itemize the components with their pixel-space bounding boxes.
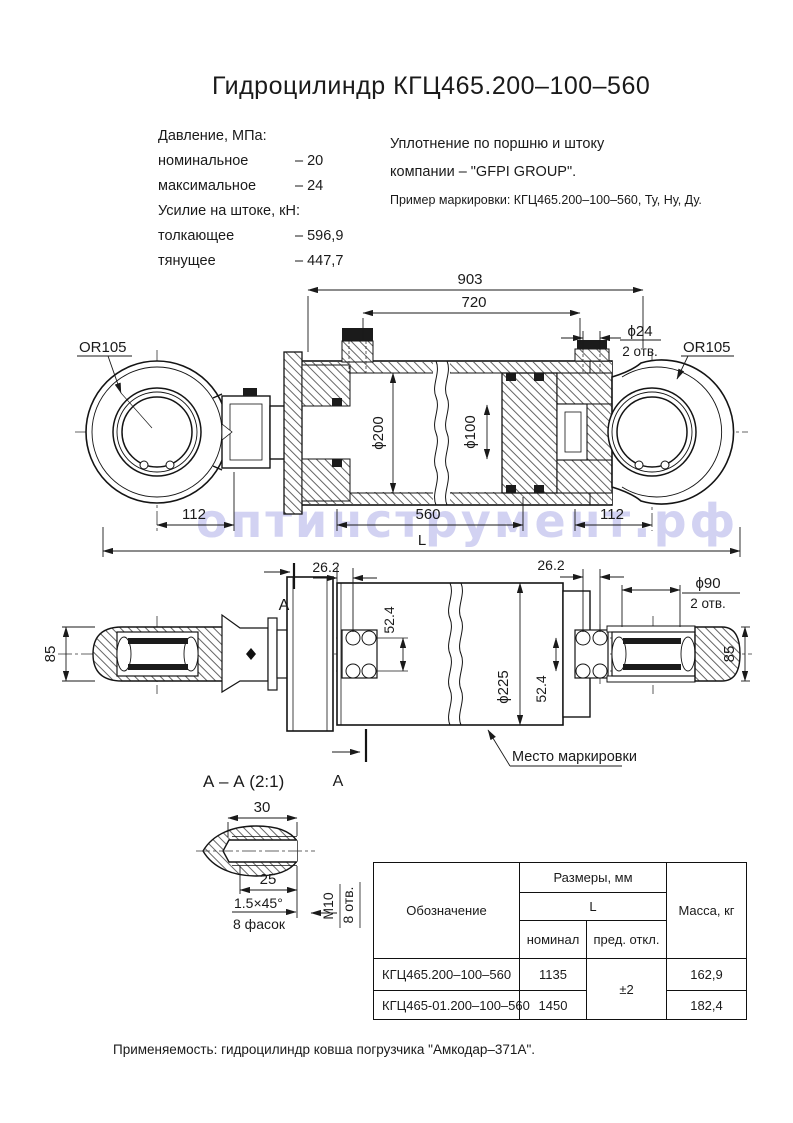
table-row-mass: 182,4	[667, 991, 746, 1019]
table-row-mass: 162,9	[667, 959, 746, 991]
section-title: А – А (2:1)	[203, 772, 284, 791]
dim-eye-hole-qty: 2 отв.	[690, 596, 726, 611]
table-header-L: L	[520, 893, 667, 921]
eye-label-left: OR105	[79, 339, 127, 356]
rod-clevis	[222, 388, 270, 468]
marking-note: Место маркировки	[512, 749, 637, 765]
dimensions-table: Обозначение Размеры, мм Масса, кг L номи…	[373, 862, 747, 1020]
table-deviation-value: ±2	[587, 959, 667, 1019]
table-row-designation: КГЦ465.200–100–560	[374, 959, 520, 991]
dim-port-qty: 2 отв.	[622, 344, 658, 359]
table-header-designation: Обозначение	[374, 863, 520, 959]
chamfer-label: 1.5×45°	[234, 895, 283, 911]
dim-body-dia: ϕ225	[495, 670, 512, 703]
gland-flange	[284, 352, 302, 514]
dim-eye-hole-dia: ϕ90	[695, 575, 720, 592]
application-note: Применяемость: гидроцилиндр ковша погруз…	[113, 1042, 535, 1057]
dim-right-112: 112	[600, 506, 624, 523]
drawing-page: { "title": "Гидроцилиндр КГЦ465.200–100–…	[0, 0, 793, 1123]
dim-span-720: 720	[461, 294, 486, 311]
side-view: 26.2 26.2 ϕ90 2 отв. 85 85 52.4 52.4 ϕ22…	[42, 557, 752, 790]
right-eye	[608, 360, 734, 504]
dim-hole-spacing-left: 52.4	[381, 606, 397, 633]
section-view: А – А (2:1) 30 25 1.5×45° 8 фасок М10 8 …	[196, 772, 360, 932]
thread-label: М10	[320, 892, 336, 919]
chamfer-qty-label: 8 фасок	[233, 916, 286, 932]
dim-depth-25: 25	[260, 871, 277, 888]
dim-hole-spacing-right: 52.4	[533, 675, 549, 702]
table-header-mass: Масса, кг	[667, 863, 746, 959]
dim-eye-width-right: 85	[721, 646, 738, 663]
dim-left-112: 112	[182, 506, 206, 523]
dim-port-dia: ϕ24	[627, 323, 652, 340]
piston	[502, 373, 557, 493]
dim-overall-903: 903	[457, 271, 482, 288]
dim-bore-dia: ϕ200	[370, 416, 387, 449]
side-left-eye	[93, 627, 223, 681]
thread-holes-qty: 8 отв.	[340, 887, 356, 924]
main-view: 903 720 ϕ24 2 отв. OR105 OR105 ϕ200 ϕ100…	[75, 271, 748, 557]
table-header-deviation: пред. откл.	[587, 921, 667, 959]
dim-eye-width-left: 85	[42, 646, 59, 663]
dim-width-30: 30	[254, 799, 271, 816]
dim-stroke-560: 560	[415, 506, 440, 523]
section-cut-label-top: А	[279, 597, 290, 614]
dim-hole-offset-right: 26.2	[537, 557, 564, 573]
eye-label-right: OR105	[683, 339, 731, 356]
table-header-sizes: Размеры, мм	[520, 863, 667, 893]
table-row-designation: КГЦ465-01.200–100–560	[374, 991, 520, 1019]
dim-rod-dia: ϕ100	[462, 415, 479, 448]
left-eye	[86, 361, 228, 503]
table-header-nominal: номинал	[520, 921, 587, 959]
gland-top	[302, 365, 350, 406]
break-line	[433, 361, 450, 505]
table-row-nominal: 1450	[520, 991, 587, 1019]
section-cut-label-bottom: А	[333, 773, 344, 790]
dim-length-L: L	[418, 532, 426, 549]
table-row-nominal: 1135	[520, 959, 587, 991]
rear-cap	[557, 373, 612, 493]
dim-hole-offset-left: 26.2	[312, 559, 339, 575]
gland-bottom	[302, 459, 350, 501]
